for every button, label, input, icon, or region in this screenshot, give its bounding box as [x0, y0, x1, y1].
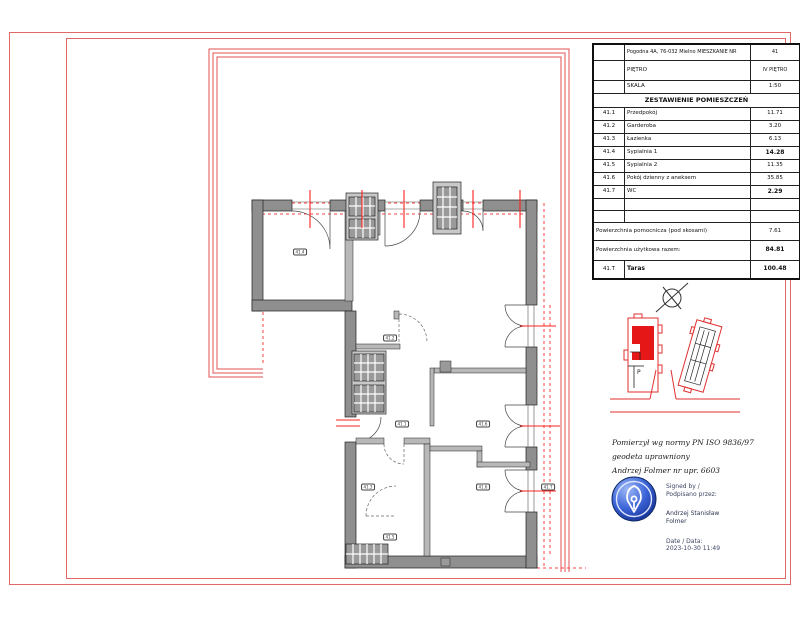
- room-tag: 41.4: [293, 249, 307, 256]
- room-name: WC: [625, 186, 751, 199]
- empty-cell: [625, 199, 751, 211]
- floor-label: PIĘTRO: [625, 61, 751, 81]
- title-block-footer: Powierzchnia pomocnicza (pod skosami) 7.…: [593, 199, 800, 280]
- terrace-number: 41.T: [593, 261, 625, 280]
- scale-value: 1:50: [751, 81, 800, 94]
- room-area: 2.29: [751, 186, 800, 199]
- room-tag: 41.2: [383, 335, 397, 342]
- room-area: 11.35: [751, 160, 800, 173]
- total-area-row: Powierzchnia użytkowa razem: 84.81: [593, 241, 800, 261]
- room-tag: 41.6: [476, 484, 490, 491]
- terrace-value: 100.48: [751, 261, 800, 280]
- french-door-arcs-right: [505, 305, 526, 512]
- signature-date: Date / Data: 2023-10-30 11:49: [666, 538, 746, 554]
- room-tag: 41.1: [395, 421, 409, 428]
- room-number: 41.6: [593, 173, 625, 186]
- site-building-highlighted: P: [624, 314, 662, 392]
- signed-by-label: Signed by / Podpisano przez:: [666, 483, 746, 499]
- room-number: 41.1: [593, 108, 625, 121]
- empty-cell: [751, 199, 800, 211]
- room-area: 35.85: [751, 173, 800, 186]
- aux-area-value: 7.61: [751, 223, 800, 241]
- empty-cell: [593, 199, 625, 211]
- svg-text:P: P: [637, 369, 641, 376]
- aux-area-label: Powierzchnia pomocnicza (pod skosami): [593, 223, 751, 241]
- empty-row: [593, 211, 800, 223]
- room-area: 11.71: [751, 108, 800, 121]
- room-row: 41.6Pokój dzienny z aneksem35.85: [593, 173, 800, 186]
- room-name: Sypialnia 2: [625, 160, 751, 173]
- site-roads: [610, 370, 740, 412]
- signer-name: Andrzej Stanisław Folmer: [666, 510, 746, 526]
- address-row: Pogodna 4A, 76-032 Mielno MIESZKANIE NR …: [593, 44, 800, 61]
- title-block-header: Pogodna 4A, 76-032 Mielno MIESZKANIE NR …: [593, 44, 800, 108]
- room-row: 41.5Sypialnia 211.35: [593, 160, 800, 173]
- room-row: 41.2Garderoba3.20: [593, 121, 800, 134]
- empty-cell: [593, 61, 625, 81]
- rooms-header-row: ZESTAWIENIE POMIESZCZEŃ: [593, 94, 800, 108]
- room-name: Pokój dzienny z aneksem: [625, 173, 751, 186]
- surveyor-note-line: Pomierzył wg normy PN ISO 9836/97: [612, 436, 782, 450]
- empty-cell: [625, 211, 751, 223]
- room-name: Sypialnia 1: [625, 147, 751, 160]
- empty-cell: [593, 211, 625, 223]
- site-map: P: [610, 283, 740, 412]
- room-list: 41.1Przedpokój11.7141.2Garderoba3.2041.3…: [593, 108, 800, 199]
- drawing-sheet: P: [0, 0, 800, 618]
- north-arrow-icon: [656, 283, 688, 312]
- empty-cell: [593, 81, 625, 94]
- room-tag: 41.3: [361, 484, 375, 491]
- room-tag: 41.T: [541, 484, 555, 491]
- signature-stamp-icon: [610, 475, 658, 523]
- digital-signature-stamp: Signed by / Podpisano przez: Andrzej Sta…: [610, 475, 746, 561]
- room-number: 41.4: [593, 147, 625, 160]
- scale-row: SKALA 1:50: [593, 81, 800, 94]
- empty-row: [593, 199, 800, 211]
- room-tag: 41.5: [383, 534, 397, 541]
- floor-value: IV PIĘTRO: [751, 61, 800, 81]
- room-name: Łazienka: [625, 134, 751, 147]
- room-number: 41.3: [593, 134, 625, 147]
- room-row: 41.7WC2.29: [593, 186, 800, 199]
- room-number: 41.5: [593, 160, 625, 173]
- total-area-label: Powierzchnia użytkowa razem:: [593, 241, 751, 261]
- room-row: 41.4Sypialnia 114.28: [593, 147, 800, 160]
- floor-row: PIĘTRO IV PIĘTRO: [593, 61, 800, 81]
- aux-area-row: Powierzchnia pomocnicza (pod skosami) 7.…: [593, 223, 800, 241]
- title-block-table: Pogodna 4A, 76-032 Mielno MIESZKANIE NR …: [592, 43, 800, 280]
- total-area-value: 84.81: [751, 241, 800, 261]
- room-tag: 41.6: [476, 421, 490, 428]
- scale-label: SKALA: [625, 81, 751, 94]
- signature-text: Signed by / Podpisano przez: Andrzej Sta…: [666, 475, 746, 561]
- room-name: Garderoba: [625, 121, 751, 134]
- room-name: Przedpokój: [625, 108, 751, 121]
- room-number: 41.7: [593, 186, 625, 199]
- room-row: 41.1Przedpokój11.71: [593, 108, 800, 121]
- address-cell: Pogodna 4A, 76-032 Mielno MIESZKANIE NR: [625, 44, 751, 61]
- room-area: 6.13: [751, 134, 800, 147]
- apartment-number: 41: [751, 44, 800, 61]
- surveyor-note-line: geodeta uprawniony: [612, 450, 782, 464]
- terrace-label: Taras: [625, 261, 751, 280]
- terrace-row: 41.T Taras 100.48: [593, 261, 800, 280]
- empty-cell: [751, 211, 800, 223]
- site-building-neighbor: [674, 315, 726, 397]
- room-row: 41.3Łazienka6.13: [593, 134, 800, 147]
- room-area: 14.28: [751, 147, 800, 160]
- room-number: 41.2: [593, 121, 625, 134]
- surveyor-note: Pomierzył wg normy PN ISO 9836/97 geodet…: [612, 436, 782, 478]
- room-area: 3.20: [751, 121, 800, 134]
- rooms-header: ZESTAWIENIE POMIESZCZEŃ: [593, 94, 800, 108]
- empty-cell: [593, 44, 625, 61]
